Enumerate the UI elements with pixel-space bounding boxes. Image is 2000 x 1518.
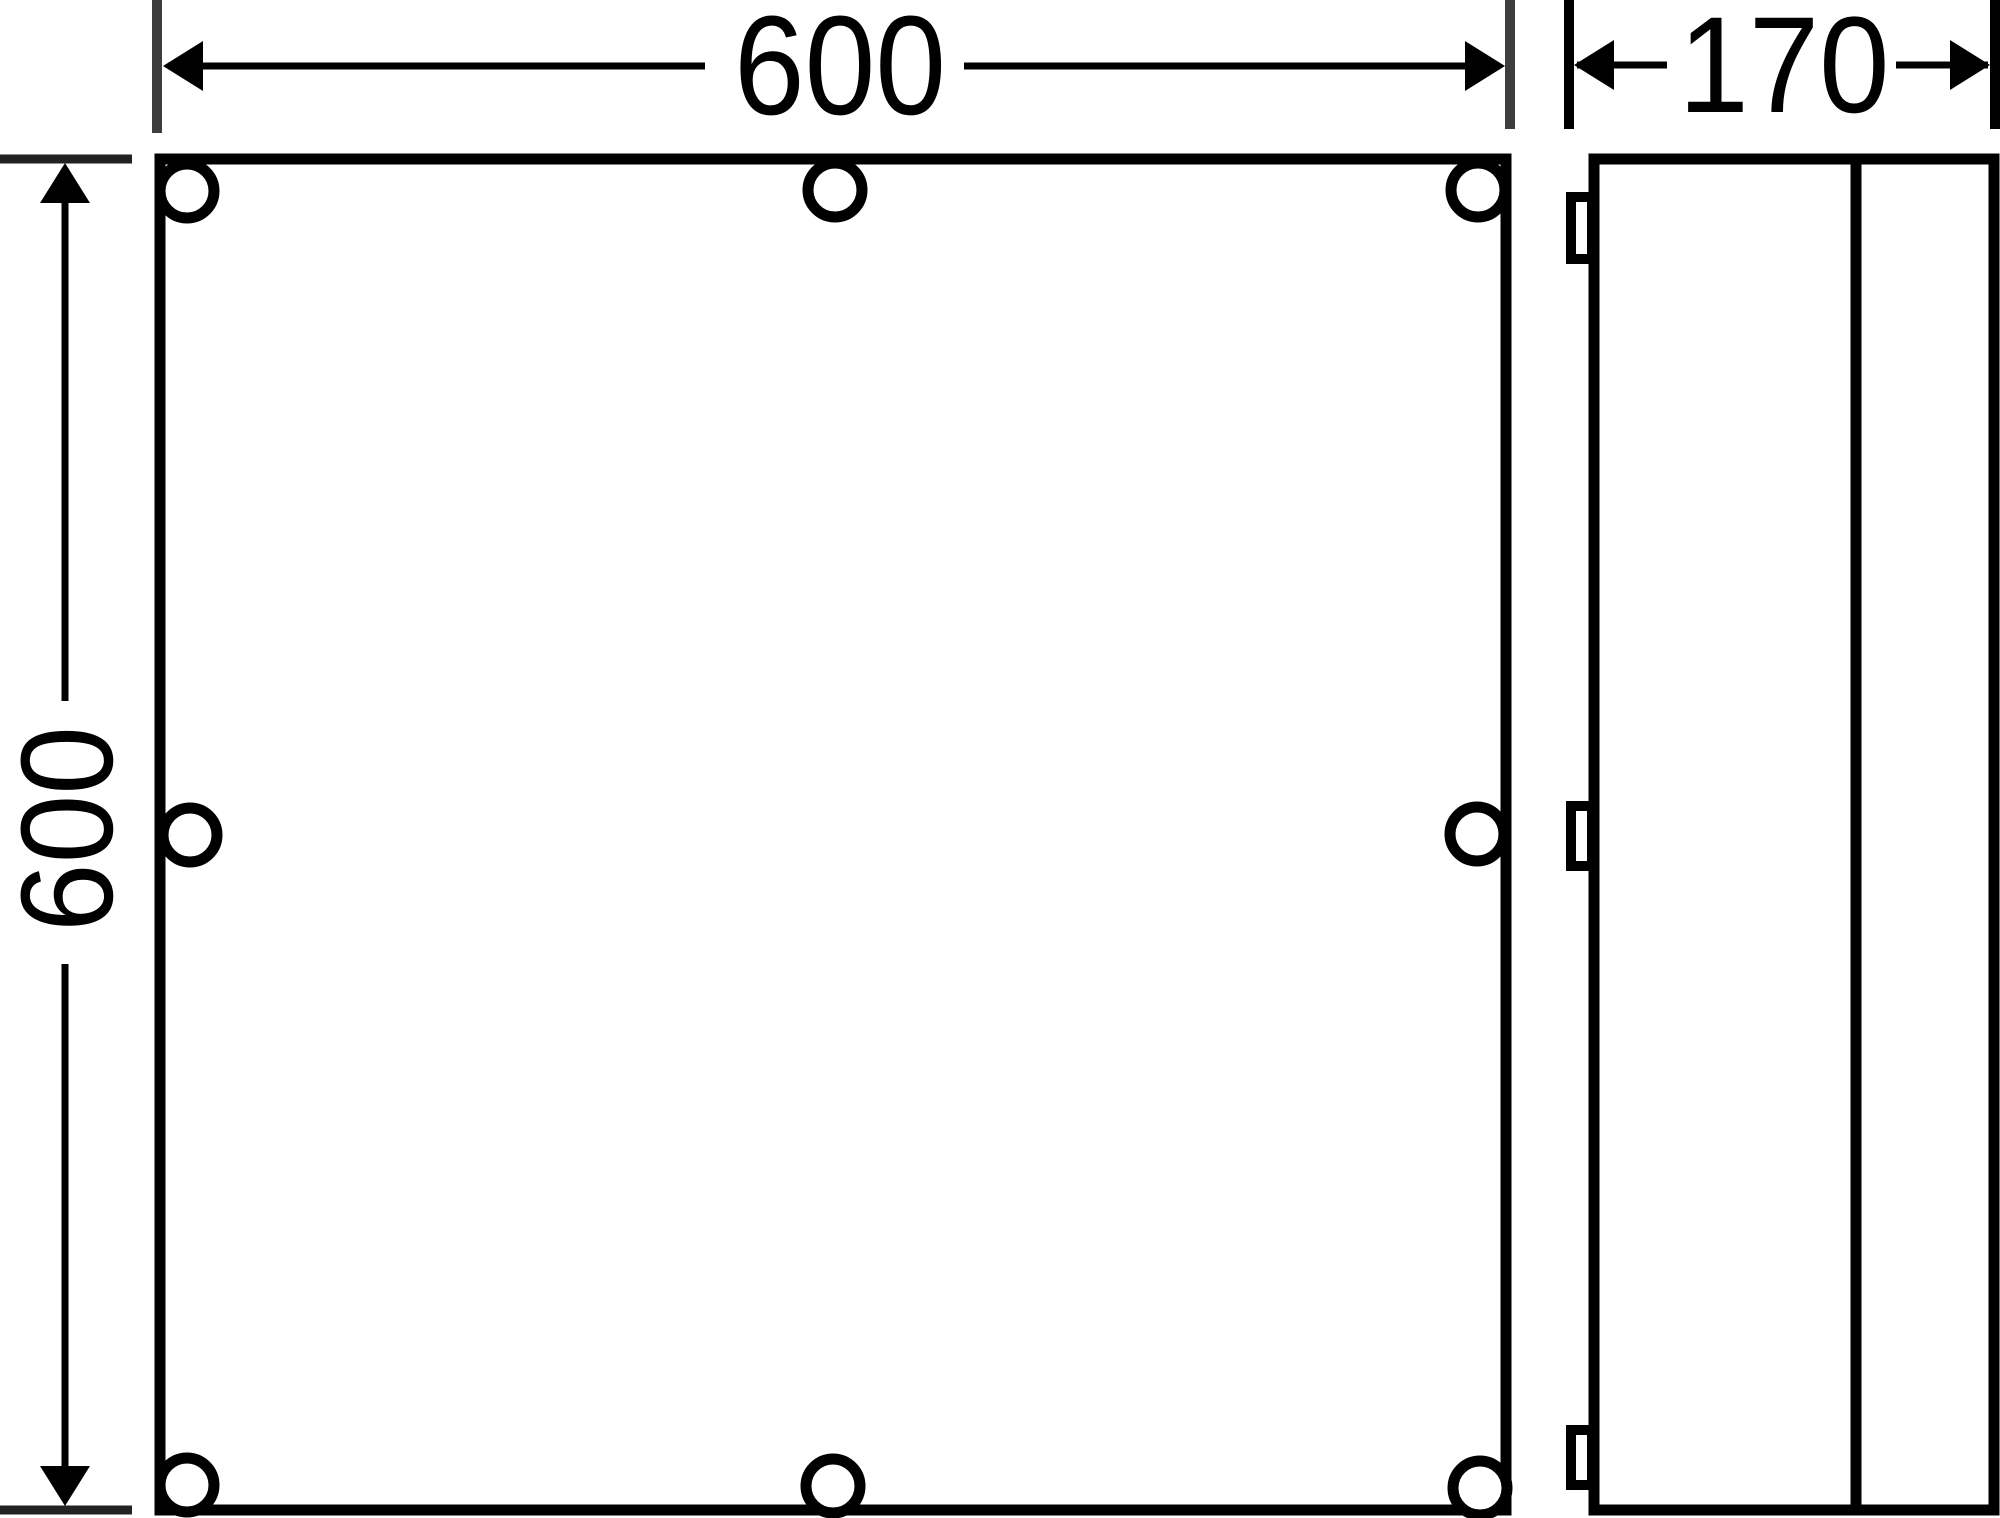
svg-text:600: 600 xyxy=(734,0,946,144)
svg-text:170: 170 xyxy=(1679,0,1890,142)
svg-text:600: 600 xyxy=(0,726,140,932)
